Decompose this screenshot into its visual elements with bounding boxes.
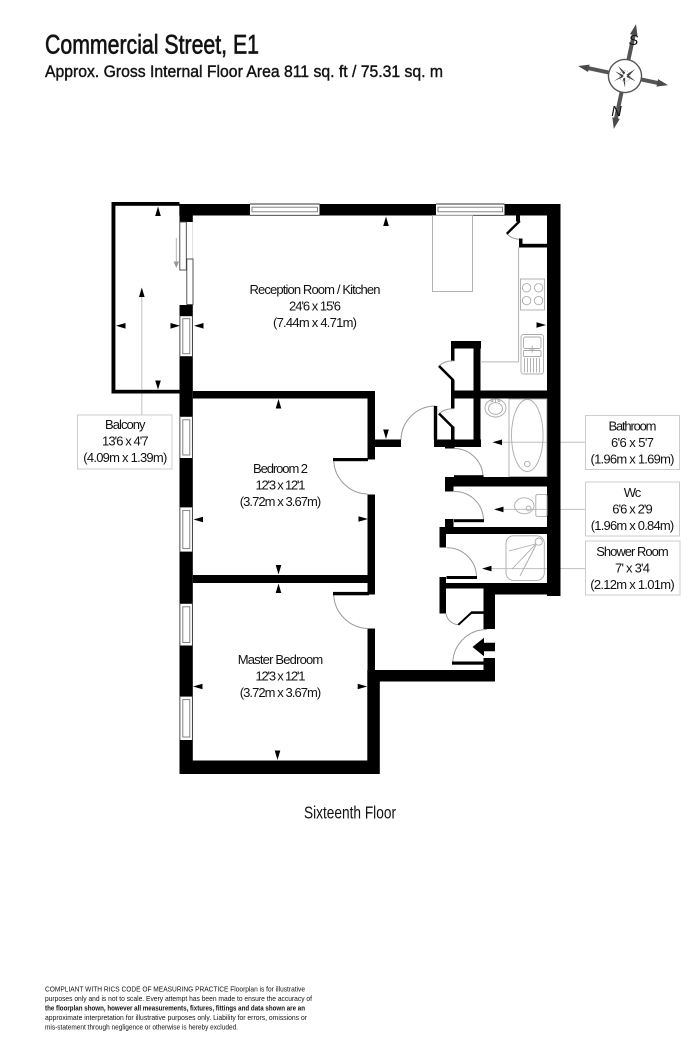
svg-text:(3.72m x 3.67m): (3.72m x 3.67m) <box>240 685 322 700</box>
svg-text:Bedroom 2: Bedroom 2 <box>253 461 308 476</box>
svg-text:the floorplan shown, however a: the floorplan shown, however all measure… <box>45 1004 305 1013</box>
svg-text:Approx. Gross Internal Floor A: Approx. Gross Internal Floor Area 811 sq… <box>45 63 443 81</box>
svg-text:(2.12m x 1.01m): (2.12m x 1.01m) <box>590 577 675 592</box>
svg-text:Sixteenth Floor: Sixteenth Floor <box>304 803 396 823</box>
svg-text:(3.72m x 3.67m): (3.72m x 3.67m) <box>240 494 322 509</box>
svg-text:7' x 3'4: 7' x 3'4 <box>615 560 650 575</box>
svg-text:(1.96m x 0.84m): (1.96m x 0.84m) <box>591 518 675 533</box>
svg-text:mis-statement through negligen: mis-statement through negligence or othe… <box>45 1023 238 1032</box>
svg-text:purposes only and is not to sc: purposes only and is not to scale. Every… <box>45 994 312 1003</box>
svg-text:12'3 x 12'1: 12'3 x 12'1 <box>256 668 306 683</box>
svg-text:12'3 x 12'1: 12'3 x 12'1 <box>256 477 306 492</box>
svg-text:6'6 x 5'7: 6'6 x 5'7 <box>611 435 654 450</box>
svg-text:COMPLIANT WITH RICS CODE OF ME: COMPLIANT WITH RICS CODE OF MEASURING PR… <box>45 985 305 994</box>
svg-text:13'6 x 4'7: 13'6 x 4'7 <box>102 434 149 449</box>
svg-text:Bathroom: Bathroom <box>609 419 657 434</box>
svg-text:(1.96m x 1.69m): (1.96m x 1.69m) <box>591 451 675 466</box>
svg-text:Wc: Wc <box>624 485 642 500</box>
svg-text:Master Bedroom: Master Bedroom <box>238 652 324 667</box>
svg-text:24'6 x 15'6: 24'6 x 15'6 <box>289 299 341 314</box>
svg-text:N: N <box>611 104 622 120</box>
svg-text:Reception Room / Kitchen: Reception Room / Kitchen <box>250 282 381 297</box>
svg-text:S: S <box>629 33 639 49</box>
svg-text:(7.44m x 4.71m): (7.44m x 4.71m) <box>273 315 357 330</box>
svg-text:Balcony: Balcony <box>105 417 146 432</box>
svg-text:Shower Room: Shower Room <box>596 544 669 559</box>
svg-text:6'6 x 2'9: 6'6 x 2'9 <box>612 501 653 516</box>
svg-text:Commercial Street, E1: Commercial Street, E1 <box>45 30 259 60</box>
svg-text:approximate interpretation for: approximate interpretation for illustrat… <box>45 1013 308 1022</box>
svg-text:(4.09m x 1.39m): (4.09m x 1.39m) <box>83 450 167 465</box>
